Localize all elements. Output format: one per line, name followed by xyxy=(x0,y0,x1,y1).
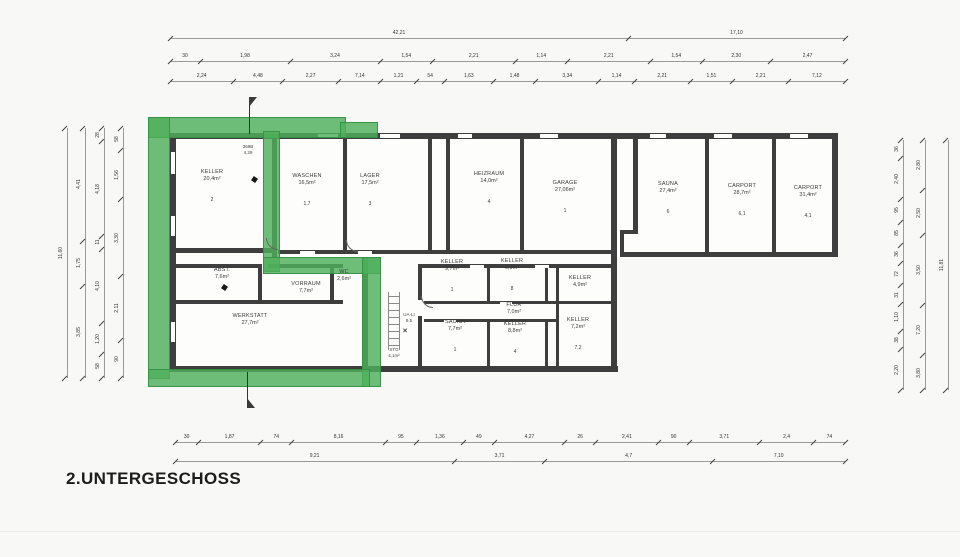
wall-opening xyxy=(171,216,175,236)
room-label: SAUNA7,7m²1 xyxy=(445,319,465,353)
room-number: 1,7 xyxy=(292,201,321,207)
dimension-value: 11,60 xyxy=(58,247,64,259)
wall-segment xyxy=(556,301,613,304)
wall-segment xyxy=(705,139,709,252)
room-label: WASCHEN16,5m²1,7 xyxy=(292,173,321,207)
dimension-line xyxy=(170,38,845,39)
dimension-chain: 362,4095853672311,10382,20 xyxy=(898,140,910,390)
section-flag-bottom-icon xyxy=(247,398,255,408)
dimension-value: 4,27 xyxy=(525,434,535,440)
dimension-chain: 9,213,714,77,10 xyxy=(175,456,845,468)
section-flag-top-icon xyxy=(249,97,257,107)
room-area: 27,4m² xyxy=(658,188,678,195)
dimension-value: 3,71 xyxy=(719,434,729,440)
dimension-value: 9,21 xyxy=(310,453,320,459)
dimension-value: 1,36 xyxy=(435,434,445,440)
dimension-chain: 2,244,482,277,141,21541,631,483,341,142,… xyxy=(170,76,845,88)
dimension-value: 3,30 xyxy=(114,233,120,243)
dimension-line xyxy=(175,442,845,443)
small-label: STG4,1m² xyxy=(388,347,400,359)
dimension-chain: 11,60 xyxy=(62,128,74,378)
room-name: CARPORT xyxy=(728,183,756,190)
dimension-tick xyxy=(898,388,904,394)
room-name: KELLER xyxy=(201,169,223,176)
dimension-value: 7,14 xyxy=(355,73,365,79)
dimension-value: 54 xyxy=(427,73,433,79)
room-number: 8 xyxy=(501,286,523,292)
dimension-value: 1,20 xyxy=(95,334,101,344)
wall-segment xyxy=(343,139,347,250)
room-label: CARPORT31,4m²4,1 xyxy=(794,185,822,219)
room-number: 6,1 xyxy=(728,211,756,217)
wall-opening xyxy=(470,265,484,268)
room-number: 2 xyxy=(201,197,223,203)
wall-segment xyxy=(556,268,559,366)
dimension-value: 58 xyxy=(114,136,120,142)
stair-treads xyxy=(399,292,400,350)
room-number: 4 xyxy=(504,349,526,355)
dimension-value: 4,10 xyxy=(95,281,101,291)
room-name: KELLER xyxy=(504,321,526,328)
dimension-value: 90 xyxy=(114,356,120,362)
dimension-value: 1,48 xyxy=(510,73,520,79)
dimension-tick xyxy=(842,440,848,446)
dimension-value: 3,71 xyxy=(495,453,505,459)
wall-segment xyxy=(633,139,638,234)
dimension-value: 11 xyxy=(95,240,101,245)
dimension-value: 74 xyxy=(827,434,833,440)
wall-segment xyxy=(176,248,272,253)
room-number: 1 xyxy=(553,208,578,214)
dimension-tick xyxy=(62,376,68,382)
dimension-tick xyxy=(118,376,124,382)
highlight-band xyxy=(340,122,378,138)
room-label: FLUR7,0m² xyxy=(506,302,521,316)
dimension-value: 4,7 xyxy=(625,453,632,459)
dimension-tick xyxy=(920,388,926,394)
dimension-value: 2,20 xyxy=(894,365,900,375)
dimension-value: 3,34 xyxy=(562,73,572,79)
room-name: KELLER xyxy=(501,258,523,265)
dimension-value: 1,56 xyxy=(114,170,120,180)
dimension-value: 1,14 xyxy=(536,53,546,59)
dimension-tick xyxy=(842,36,848,42)
dimension-tick xyxy=(80,376,86,382)
dimension-value: 49 xyxy=(476,434,482,440)
wall-segment xyxy=(487,322,490,366)
dimension-line xyxy=(948,140,949,390)
dimension-chain: 42,2117,10 xyxy=(170,33,845,45)
room-area: 9,9m² xyxy=(501,265,523,272)
wall-opening xyxy=(171,322,175,342)
dimension-chain: 301,983,241,542,211,142,211,542,302,47 xyxy=(170,56,845,68)
dimension-value: 2,40 xyxy=(894,174,900,184)
dimension-value: 7,10 xyxy=(774,453,784,459)
dimension-tick xyxy=(842,59,848,65)
dimension-value: 1,10 xyxy=(894,312,900,322)
dimension-line xyxy=(104,128,105,378)
room-area: 7,7m² xyxy=(445,326,465,333)
wall-segment xyxy=(258,264,262,302)
room-number: 1 xyxy=(441,287,463,293)
dimension-value: 1,14 xyxy=(612,73,622,79)
small-label: 369B4,29 xyxy=(243,144,254,156)
wall-opening xyxy=(535,265,549,268)
room-label: KELLER9,9m²8 xyxy=(501,258,523,292)
dimension-line xyxy=(170,81,845,82)
room-label: KELLER9,7m²1 xyxy=(441,259,463,293)
dimension-value: 2,11 xyxy=(114,303,120,312)
wall-opening xyxy=(171,152,175,174)
room-number: 4 xyxy=(474,199,504,205)
dimension-tick xyxy=(99,376,105,382)
dimension-value: 7,20 xyxy=(916,325,922,335)
highlight-band xyxy=(263,131,280,272)
room-area: 31,4m² xyxy=(794,192,822,199)
room-name: FLUR xyxy=(506,302,521,309)
dimension-value: 2,21 xyxy=(469,53,479,59)
room-name: GARAGE xyxy=(553,180,578,187)
dimension-value: 36 xyxy=(894,251,900,257)
room-name: KELLER xyxy=(441,259,463,266)
dimension-value: 26 xyxy=(577,434,583,440)
dimension-value: 38 xyxy=(894,337,900,343)
room-name: WC xyxy=(337,269,351,276)
wall-segment xyxy=(772,139,776,252)
dimension-value: 72 xyxy=(894,271,900,277)
dimension-value: 85 xyxy=(894,230,900,236)
wall-segment xyxy=(832,133,838,257)
room-area: 14,0m² xyxy=(474,178,504,185)
wall-segment xyxy=(611,133,617,372)
wall-segment xyxy=(545,322,548,366)
dimension-value: 90 xyxy=(671,434,677,440)
dimension-chain: 284,18114,101,2058 xyxy=(99,128,111,378)
dimension-line xyxy=(67,128,68,378)
dimension-value: 30 xyxy=(184,434,190,440)
room-name: SAUNA xyxy=(658,181,678,188)
room-area: 7,6m² xyxy=(214,274,230,281)
room-number: 1 xyxy=(445,347,465,353)
dimension-value: 2,30 xyxy=(731,53,741,59)
room-area: 8,8m² xyxy=(504,328,526,335)
room-name: HEIZRAUM xyxy=(474,171,504,178)
room-label: GARAGE27,06m²1 xyxy=(553,180,578,214)
dimension-value: 1,98 xyxy=(240,53,250,59)
dimension-value: 30 xyxy=(182,53,188,59)
highlight-band xyxy=(362,257,381,387)
highlight-band xyxy=(148,117,170,379)
room-label: WERKSTATT27,7m² xyxy=(233,313,268,327)
dimension-value: 11,81 xyxy=(939,259,945,271)
room-name: WASCHEN xyxy=(292,173,321,180)
wall-segment xyxy=(487,268,490,301)
room-label: SAUNA27,4m²6 xyxy=(658,181,678,215)
small-label: UA-LI9,5 xyxy=(403,312,415,324)
room-label: VORRAUM7,7m² xyxy=(291,281,321,295)
wall-segment xyxy=(424,301,558,304)
dimension-value: 4,18 xyxy=(95,184,101,194)
dimension-value: 3,24 xyxy=(330,53,340,59)
dimension-value: 4,48 xyxy=(253,73,263,79)
dimension-value: 2,21 xyxy=(756,73,766,79)
room-label: ABST.7,6m² xyxy=(214,267,230,281)
dimension-value: 3,80 xyxy=(916,368,922,378)
wall-segment xyxy=(418,316,422,368)
dimension-value: 2,21 xyxy=(604,53,614,59)
dimension-value: 58 xyxy=(95,363,101,369)
wall-segment xyxy=(620,252,838,257)
room-label: KELLER7,2m²7,2 xyxy=(567,317,589,351)
floor-plan: 2.UNTERGESCHOSS ✕KELLER20,4m²2WASCHEN16,… xyxy=(0,0,960,557)
room-number: 6 xyxy=(658,209,678,215)
dimension-value: 31 xyxy=(894,292,900,298)
wall-opening xyxy=(540,134,558,138)
room-area: 27,7m² xyxy=(233,320,268,327)
wall-opening xyxy=(300,251,315,254)
dimension-value: 1,21 xyxy=(394,73,404,79)
dimension-tick xyxy=(943,388,949,394)
wall-opening xyxy=(380,134,400,138)
highlight-band xyxy=(148,369,370,387)
wall-segment xyxy=(428,139,432,251)
dimension-value: 95 xyxy=(894,208,900,214)
wall-segment xyxy=(446,139,450,251)
room-name: WERKSTATT xyxy=(233,313,268,320)
dimension-value: 7,12 xyxy=(812,73,822,79)
dimension-value: 1,54 xyxy=(401,53,411,59)
wall-segment xyxy=(620,230,624,256)
dimension-value: 28 xyxy=(95,132,101,138)
room-label: WC2,6m² xyxy=(337,269,351,283)
room-area: 16,5m² xyxy=(292,180,321,187)
dimension-value: 36 xyxy=(894,146,900,152)
dimension-line xyxy=(170,61,845,62)
room-name: SAUNA xyxy=(445,319,465,326)
dimension-value: 1,51 xyxy=(707,73,717,79)
room-area: 7,2m² xyxy=(567,324,589,331)
room-area: 7,0m² xyxy=(506,309,521,316)
wall-opening xyxy=(650,134,666,138)
wall-segment xyxy=(520,139,524,251)
room-area: 27,06m² xyxy=(553,187,578,194)
highlight-band xyxy=(148,117,346,138)
room-area: 2,6m² xyxy=(337,276,351,283)
dimension-line xyxy=(175,461,845,462)
dimension-value: 2,41 xyxy=(622,434,632,440)
dimension-value: 8,16 xyxy=(334,434,344,440)
dimension-value: 1,54 xyxy=(671,53,681,59)
wall-opening xyxy=(458,134,472,138)
dimension-tick xyxy=(842,79,848,85)
wall-segment xyxy=(418,264,422,300)
dimension-value: 1,75 xyxy=(76,258,82,268)
room-label: KELLER8,8m²4 xyxy=(504,321,526,355)
dimension-value: 2,50 xyxy=(916,208,922,218)
room-name: KELLER xyxy=(567,317,589,324)
wall-opening xyxy=(790,134,808,138)
dimension-value: 95 xyxy=(398,434,404,440)
dimension-chain: 2,802,503,507,203,80 xyxy=(920,140,932,390)
room-number: 3 xyxy=(360,201,380,207)
dimension-chain: 581,563,302,1190 xyxy=(118,128,130,378)
room-area: 4,9m² xyxy=(569,282,591,289)
dimension-value: 1,63 xyxy=(464,73,474,79)
room-area: 7,7m² xyxy=(291,288,321,295)
dimension-value: 2,80 xyxy=(916,160,922,170)
room-label: LAGER17,5m²3 xyxy=(360,173,380,207)
room-number: 7,2 xyxy=(567,345,589,351)
room-label: HEIZRAUM14,0m²4 xyxy=(474,171,504,205)
dimension-value: 1,87 xyxy=(225,434,235,440)
dimension-value: 4,41 xyxy=(76,179,82,189)
wall-segment xyxy=(545,268,548,301)
room-area: 17,5m² xyxy=(360,180,380,187)
dimension-line xyxy=(123,128,124,378)
dimension-value: 2,4 xyxy=(783,434,790,440)
room-label: KELLER20,4m²2 xyxy=(201,169,223,203)
dimension-value: 2,47 xyxy=(803,53,813,59)
wall-segment xyxy=(278,250,612,254)
room-name: LAGER xyxy=(360,173,380,180)
room-name: ABST. xyxy=(214,267,230,274)
wall-opening xyxy=(714,134,732,138)
dimension-chain: 301,87748,16951,36494,27262,41903,712,47… xyxy=(175,437,845,449)
dimension-line xyxy=(85,128,86,378)
room-label: KELLER4,9m² xyxy=(569,275,591,289)
room-area: 9,7m² xyxy=(441,266,463,273)
dimension-value: 74 xyxy=(273,434,279,440)
dimension-line xyxy=(903,140,904,390)
room-number: 4,1 xyxy=(794,213,822,219)
dimension-tick xyxy=(842,459,848,465)
room-label: CARPORT28,7m²6,1 xyxy=(728,183,756,217)
dimension-value: 3,85 xyxy=(76,327,82,337)
stair-direction-symbol: ✕ xyxy=(402,327,408,335)
room-name: VORRAUM xyxy=(291,281,321,288)
dimension-value: 42,21 xyxy=(393,30,406,36)
dimension-value: 2,21 xyxy=(657,73,667,79)
dimension-value: 2,24 xyxy=(197,73,207,79)
wall-opening xyxy=(358,251,372,254)
dimension-chain: 11,81 xyxy=(943,140,955,390)
room-name: KELLER xyxy=(569,275,591,282)
room-name: CARPORT xyxy=(794,185,822,192)
stair-treads xyxy=(388,292,389,350)
dimension-value: 2,27 xyxy=(306,73,316,79)
room-area: 20,4m² xyxy=(201,176,223,183)
dimension-chain: 4,411,753,85 xyxy=(80,128,92,378)
room-area: 28,7m² xyxy=(728,190,756,197)
plan-drawing: ✕KELLER20,4m²2WASCHEN16,5m²1,7LAGER17,5m… xyxy=(0,0,960,557)
dimension-value: 17,10 xyxy=(730,30,743,36)
dimension-value: 3,50 xyxy=(916,265,922,275)
